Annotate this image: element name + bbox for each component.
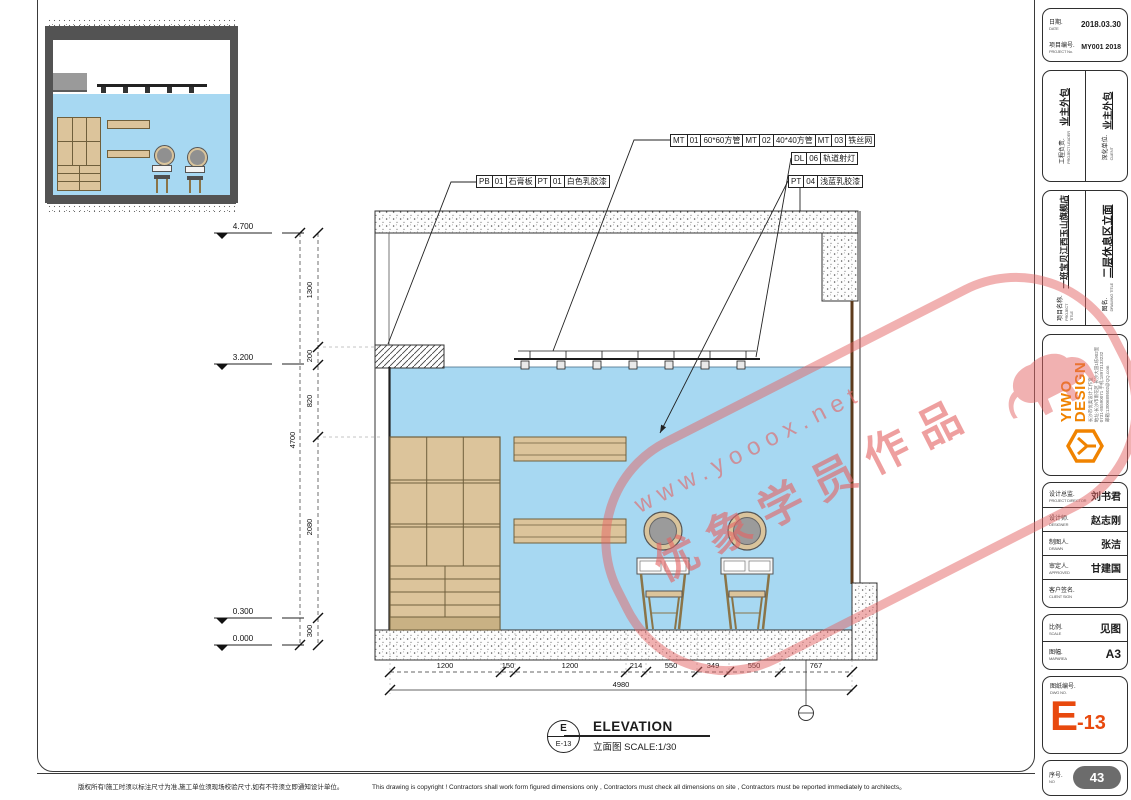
titleblock-leader-box: 工程负责.PROJECT LEADER 业主外包 深化单位.CLIENT 业主外… [1042, 70, 1128, 182]
svg-text:1200: 1200 [437, 661, 454, 670]
project-number-value: MY001 2018 [1081, 44, 1121, 51]
titleblock-dwgno-box: 图纸编号.DWG NO. E -13 [1042, 676, 1128, 754]
sheet-size-value: A3 [1106, 647, 1121, 661]
titleblock-date-box: 日期.DATE 2018.03.30 项目编号.PROJECT No. MY00… [1042, 8, 1128, 62]
elevation-drawing: 4.700 3.200 0.300 0.000 4700 [0, 0, 1131, 800]
svg-text:1200: 1200 [562, 661, 579, 670]
floor-band [375, 630, 860, 660]
svg-text:2080: 2080 [305, 519, 314, 536]
titleblock-personnel-box: 设计总监.PROJECT DIRECTOR 刘书君 设计师.DESIGNER 赵… [1042, 482, 1128, 608]
client-value: 业主外包 [1100, 92, 1114, 130]
svg-text:4700: 4700 [288, 432, 297, 449]
vertical-dimensions: 4700 1300 200 820 2080 300 [288, 228, 382, 650]
titleblock-logo-box: YIWO DESIGN 长沙市优奥设计工作室 地址:长沙市雨花区 长沙大道1栋9… [1042, 334, 1128, 476]
brand-line2: DESIGN [1074, 347, 1088, 423]
svg-text:349: 349 [707, 661, 720, 670]
drawing-caption-title: ELEVATION [593, 719, 673, 734]
titleblock-title-box: 项目名称.PROJECT TITLE 一班宝贝江西玉山旗舰店 图名.DRAWIN… [1042, 190, 1128, 326]
svg-text:150: 150 [502, 661, 515, 670]
serial-number-badge: 43 [1073, 766, 1121, 789]
svg-text:1300: 1300 [305, 282, 314, 299]
drawing-title-value: 二层休息区立面 [1099, 205, 1114, 279]
svg-text:0.300: 0.300 [233, 607, 254, 616]
callout-track-light: DL06轨道射灯 [791, 152, 858, 165]
svg-text:300: 300 [305, 625, 314, 638]
svg-text:200: 200 [305, 350, 314, 363]
date-value: 2018.03.30 [1081, 20, 1121, 29]
beam-section [375, 345, 444, 368]
callout-steel-tubes: MT0160*60方管MT0240*40方管MT03铁丝网 [670, 134, 875, 147]
svg-text:4.700: 4.700 [233, 222, 254, 231]
yiwo-logo-icon [1066, 429, 1104, 463]
reference-sheet: E-13 [548, 737, 579, 750]
cabinet [390, 437, 500, 630]
footer-disclaimer-en: This drawing is copyright ! Contractors … [372, 781, 906, 791]
svg-text:4980: 4980 [613, 680, 630, 689]
svg-text:214: 214 [630, 661, 643, 670]
titleblock-scale-box: 比例.SCALE 见图 图幅.MAPAREA A3 [1042, 614, 1128, 670]
caption-underline [564, 735, 710, 737]
brand-email: 邮箱:1300689502@QQ.com [1105, 347, 1111, 423]
callout-blue-paint: PT04浅蓝乳胶漆 [788, 175, 863, 188]
drawn-value: 张洁 [1101, 536, 1121, 551]
svg-text:550: 550 [748, 661, 761, 670]
approved-value: 甘建国 [1091, 560, 1121, 575]
dwg-number-sub: -13 [1077, 712, 1106, 735]
svg-text:3.200: 3.200 [233, 353, 254, 362]
drawing-sheet: 4.700 3.200 0.300 0.000 4700 [0, 0, 1131, 800]
track-light [514, 351, 760, 369]
footer-disclaimer-cn: 版权所有!施工时须以标注尺寸为准,施工单位须现场校验尺寸,如有不符须立即通知设计… [78, 781, 343, 791]
callout-gypsum-paint: PB01石膏板PT01白色乳胶漆 [476, 175, 610, 188]
svg-text:550: 550 [665, 661, 678, 670]
designer-value: 赵志刚 [1091, 512, 1121, 527]
titleblock-serial-box: 序号.NO 43 [1042, 760, 1128, 796]
column-base [852, 583, 877, 660]
director-value: 刘书君 [1091, 488, 1121, 503]
svg-text:767: 767 [810, 661, 823, 670]
project-title-value: 一班宝贝江西玉山旗舰店 [1058, 195, 1070, 289]
scale-value: 见图 [1100, 621, 1121, 636]
project-leader-value: 业主外包 [1057, 88, 1071, 126]
svg-text:820: 820 [305, 395, 314, 408]
dwg-number-main: E [1050, 697, 1077, 735]
drawing-caption-scale: 立面图 SCALE:1/30 [593, 739, 676, 753]
svg-text:0.000: 0.000 [233, 634, 254, 643]
footer-divider [37, 773, 1035, 774]
